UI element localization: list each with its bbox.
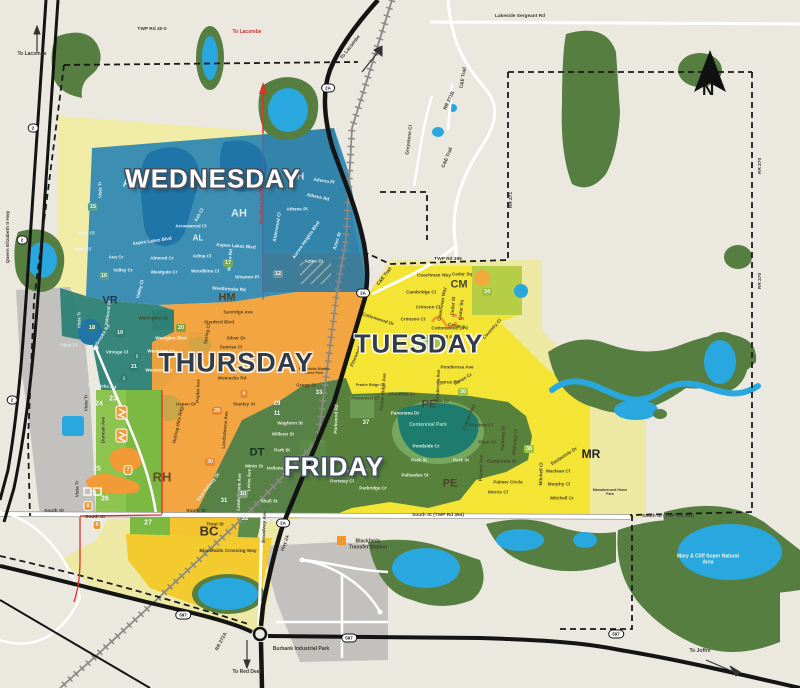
- zone-number-badge: 34: [482, 288, 492, 296]
- highway-shield: 597: [175, 611, 191, 620]
- zone-number-badge: 10: [238, 490, 248, 498]
- north-label: N: [702, 80, 714, 100]
- zone-number-badge: 11: [272, 410, 282, 418]
- zone-number-badge: 24: [93, 400, 105, 409]
- day-zone-label: WEDNESDAY: [125, 164, 301, 195]
- zone-number-badge: 16: [99, 272, 109, 280]
- zone-number-badge: 20: [176, 324, 186, 332]
- highway-shield: 2A: [356, 289, 370, 298]
- map-canvas: N Vista TrAnna ClArlen ClAva CrAspen Lak…: [0, 0, 800, 688]
- zone-number-badge: 25: [91, 465, 103, 474]
- zone-number-badge: 30: [205, 458, 215, 466]
- zone-number-badge: 15: [88, 203, 98, 211]
- zone-number-badge: 9: [92, 520, 101, 530]
- vr-pond: [78, 319, 102, 345]
- zone-number-badge: 33: [314, 389, 325, 397]
- zone-number-badge: 1: [121, 375, 128, 382]
- zone-number-badge: 2: [134, 353, 141, 360]
- zone-number-badge: 32: [240, 515, 251, 523]
- zone-number-badge: 4: [240, 390, 247, 398]
- zone-number-badge: 17: [223, 259, 233, 267]
- day-zone-label: FRIDAY: [284, 452, 384, 483]
- highway-shield: 597: [608, 630, 624, 639]
- day-zone-label: THURSDAY: [158, 348, 314, 379]
- zone-number-badge: 37: [361, 419, 372, 427]
- transfer-station-icon: [337, 536, 346, 545]
- highway-shield: 2A: [321, 84, 335, 93]
- highway-shield: 597: [341, 634, 357, 643]
- zone-number-badge: 26: [99, 495, 111, 504]
- zone-number-badge: 38: [524, 445, 534, 453]
- zone-number-badge: 31: [219, 497, 230, 505]
- zone-number-badge: 7: [123, 465, 132, 475]
- highway-shield: 2: [28, 124, 39, 133]
- zone-number-badge: 23: [107, 395, 119, 404]
- zone-number-badge: 27: [142, 519, 154, 528]
- zone-number-badge: 28: [212, 407, 222, 415]
- zone-number-badge: 12: [273, 270, 283, 278]
- highway-shield: 2: [17, 236, 28, 245]
- highway-shield: 2A: [276, 519, 290, 528]
- zone-number-badge: 18: [87, 324, 97, 332]
- zone-number-badge: 19: [115, 329, 125, 337]
- zone-number-badge: 29: [272, 400, 283, 408]
- zone-number-badge: 36: [458, 388, 468, 396]
- zone-number-badge: 8: [83, 501, 92, 511]
- zone-number-badge: 21: [129, 363, 139, 371]
- day-zone-label: TUESDAY: [355, 329, 484, 360]
- highway-shield: 2: [7, 396, 18, 405]
